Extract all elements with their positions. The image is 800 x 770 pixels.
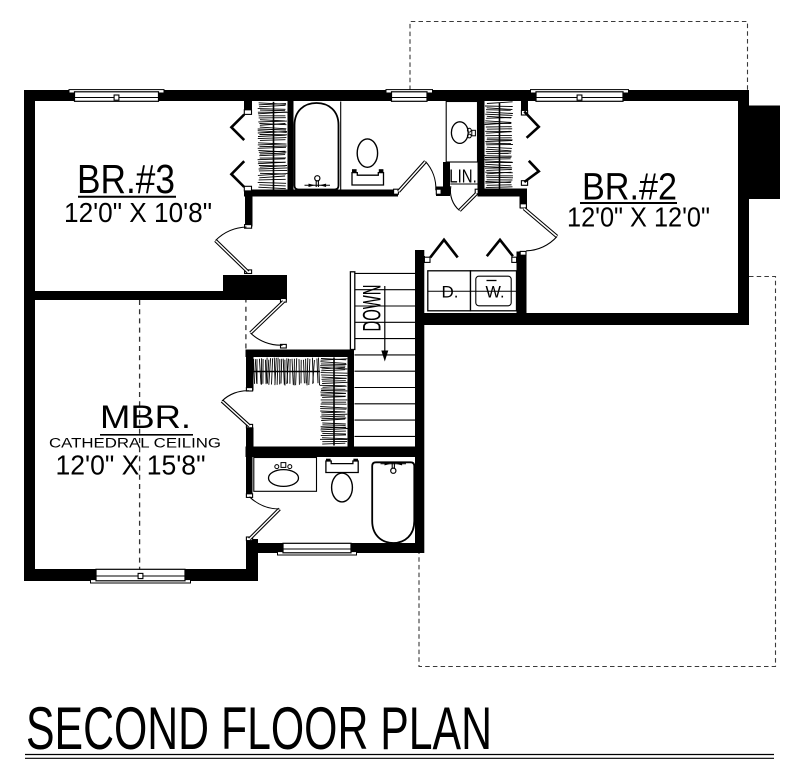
svg-text:BR.#3: BR.#3 (77, 156, 175, 202)
svg-text:12'0" X 15'8": 12'0" X 15'8" (56, 450, 206, 481)
svg-text:SECOND FLOOR PLAN: SECOND FLOOR PLAN (26, 695, 492, 762)
svg-text:DOWN: DOWN (359, 285, 387, 332)
svg-text:12'0" X 12'0": 12'0" X 12'0" (567, 202, 710, 233)
svg-text:D.: D. (442, 284, 459, 302)
svg-text:LIN.: LIN. (449, 166, 477, 187)
svg-text:12'0" X 10'8": 12'0" X 10'8" (64, 197, 212, 228)
svg-text:W.: W. (486, 284, 505, 302)
svg-text:MBR.: MBR. (100, 399, 191, 435)
